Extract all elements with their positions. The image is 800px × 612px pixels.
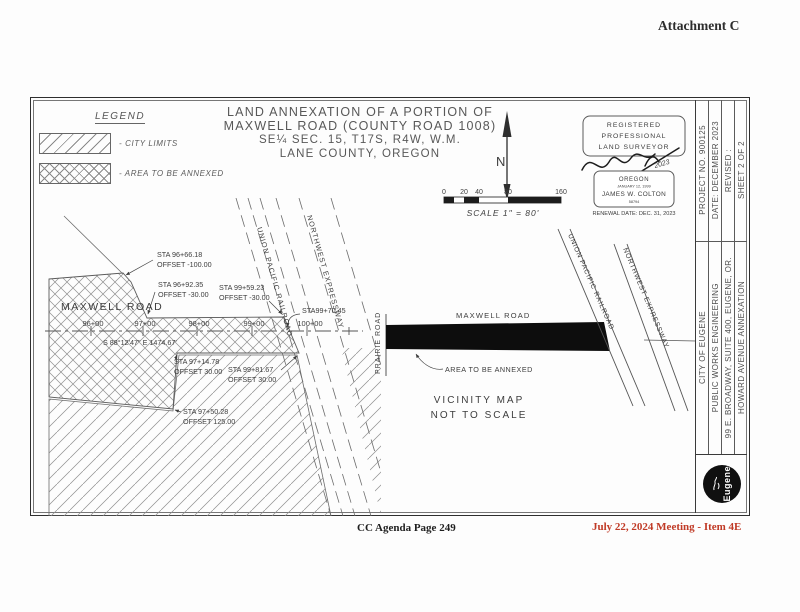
surveyor-stamp: REGISTERED PROFESSIONAL LAND SURVEYOR 20… — [579, 112, 691, 218]
callout-3-sta: STA 99+59.23 — [219, 283, 264, 292]
title-block: PROJECT NO. 900125 CITY OF EUGENE DATE: … — [695, 100, 747, 513]
stamp-license-date: JANUARY 12, 1999 — [617, 185, 650, 189]
map-title-line2: MAXWELL ROAD (COUNTY ROAD 1008) — [199, 119, 521, 133]
legend-title: LEGEND — [95, 111, 145, 124]
scale-bar: 0 20 40 80 160 SCALE 1" = 80' — [439, 184, 599, 222]
north-letter: N — [496, 154, 506, 169]
eugene-logo-glyph-icon — [712, 476, 721, 492]
vicinity-map: PRAIRIE ROAD MAXWELL ROAD UNION PACIFIC … — [361, 226, 696, 476]
stamp-state: OREGON — [619, 177, 649, 183]
station-99: 99+00 — [243, 319, 264, 328]
scale-tick-160: 160 — [555, 189, 567, 196]
vicinity-caption-1: VICINITY MAP — [434, 395, 525, 406]
map-title-line1: LAND ANNEXATION OF A PORTION OF — [199, 105, 521, 119]
revised-label: REVISED : — [724, 149, 733, 192]
project-title: HOWARD AVENUE ANNEXATION — [737, 281, 746, 414]
agency-address: 99 E. BROADWAY, SUITE 400, EUGENE, OR. — [724, 257, 733, 438]
scale-tick-40: 40 — [475, 189, 483, 196]
callout-3-offset: OFFSET -30.00 — [219, 293, 270, 302]
attachment-label: Attachment C — [658, 18, 739, 34]
vicinity-expressway-label: NORTHWEST EXPRESSWAY — [621, 247, 670, 349]
station-97: 97+00 — [134, 319, 155, 328]
boundary-line-nw — [64, 216, 123, 274]
department-name: PUBLIC WORKS ENGINEERING — [711, 283, 720, 412]
title-block-col-sheet: SHEET 2 OF 2 HOWARD AVENUE ANNEXATION — [734, 100, 747, 454]
stamp-renewal: RENEWAL DATE: DEC. 31, 2023 — [592, 211, 675, 217]
annexed-road-bar — [386, 322, 610, 351]
prairie-road-label: PRAIRIE ROAD — [375, 312, 382, 374]
vicinity-annex-label: AREA TO BE ANNEXED — [445, 365, 533, 374]
station-98: 98+00 — [188, 319, 209, 328]
callout-7-sta: STA 97+50.28 — [183, 407, 228, 416]
annex-area-label: - AREA TO BE ANNEXED — [119, 169, 224, 178]
annex-area-swatch — [39, 163, 111, 184]
project-number: PROJECT NO. 900125 — [698, 125, 707, 215]
north-arrowhead-icon — [503, 111, 512, 137]
stamp-name: JAMES W. COLTON — [602, 191, 666, 198]
station-96: 96+00 — [82, 319, 103, 328]
plan-bearing: S 88°12'47" E 1474.67' — [103, 338, 177, 347]
stamp-line1: REGISTERED — [607, 122, 661, 129]
map-title-line4: LANE COUNTY, OREGON — [199, 147, 521, 161]
city-limits-label: - CITY LIMITS — [119, 139, 178, 148]
title-block-col-project: PROJECT NO. 900125 CITY OF EUGENE — [696, 100, 708, 454]
station-100: 100+00 — [297, 319, 322, 328]
annex-leader-line — [416, 354, 443, 369]
callout-1-offset: OFFSET -100.00 — [157, 260, 212, 269]
drawing-sheet: LEGEND - CITY LIMITS - AREA TO BE ANNEXE… — [30, 97, 750, 516]
callout-1-sta: STA 96+66.18 — [157, 250, 202, 259]
eugene-logo: Eugene — [703, 465, 741, 503]
logo-box: Eugene — [696, 454, 747, 513]
vicinity-railroad-label: UNION PACIFIC RAILROAD — [566, 233, 615, 331]
legend-row-annex-area: - AREA TO BE ANNEXED — [39, 163, 249, 184]
agency-name: CITY OF EUGENE — [698, 311, 707, 384]
callout-5-offset: OFFSET 30.00 — [174, 367, 222, 376]
signature-year: 2023 — [653, 159, 671, 170]
scanned-page: Attachment C LEGEND - CITY LIMITS - AREA… — [0, 0, 800, 612]
title-block-columns: PROJECT NO. 900125 CITY OF EUGENE DATE: … — [696, 100, 747, 454]
plan-road-name: MAXWELL ROAD — [61, 301, 163, 313]
callout-2-sta: STA 96+92.35 — [158, 280, 203, 289]
callout-7-offset: OFFSET 125.00 — [183, 417, 235, 426]
callout-6-sta: STA 99+81.67 — [228, 365, 273, 374]
callout-5-sta: STA 97+14.78 — [174, 357, 219, 366]
vicinity-maxwell-road-label: MAXWELL ROAD — [456, 311, 531, 320]
title-block-col-date: DATE: DECEMBER 2023 PUBLIC WORKS ENGINEE… — [708, 100, 721, 454]
callout-6-offset: OFFSET 30.00 — [228, 375, 276, 384]
vicinity-caption-2: NOT TO SCALE — [431, 410, 528, 421]
city-limits-swatch — [39, 133, 111, 154]
stamp-line2: PROFESSIONAL — [602, 133, 667, 140]
annexation-plan-map: MAXWELL ROAD S 88°12'47" E 1474.67' 96+0… — [31, 198, 381, 516]
map-title: LAND ANNEXATION OF A PORTION OF MAXWELL … — [199, 105, 521, 161]
stamp-line3: LAND SURVEYOR — [598, 144, 669, 151]
stamp-number: 58794 — [629, 200, 640, 204]
agenda-page-number: CC Agenda Page 249 — [357, 522, 456, 534]
meeting-item-label: July 22, 2024 Meeting - Item 4E — [592, 521, 741, 533]
sheet-number: SHEET 2 OF 2 — [737, 141, 746, 199]
title-block-col-revised: REVISED : 99 E. BROADWAY, SUITE 400, EUG… — [721, 100, 734, 454]
eugene-logo-text: Eugene — [722, 466, 732, 502]
callout-2-offset: OFFSET -30.00 — [158, 290, 209, 299]
map-title-line3: SE¼ SEC. 15, T17S, R4W, W.M. — [199, 133, 521, 147]
drawing-date: DATE: DECEMBER 2023 — [711, 121, 720, 219]
scale-tick-0: 0 — [442, 189, 446, 196]
scale-label: SCALE 1" = 80' — [467, 208, 540, 218]
scale-tick-20: 20 — [460, 189, 468, 196]
scale-tick-80: 80 — [504, 189, 512, 196]
